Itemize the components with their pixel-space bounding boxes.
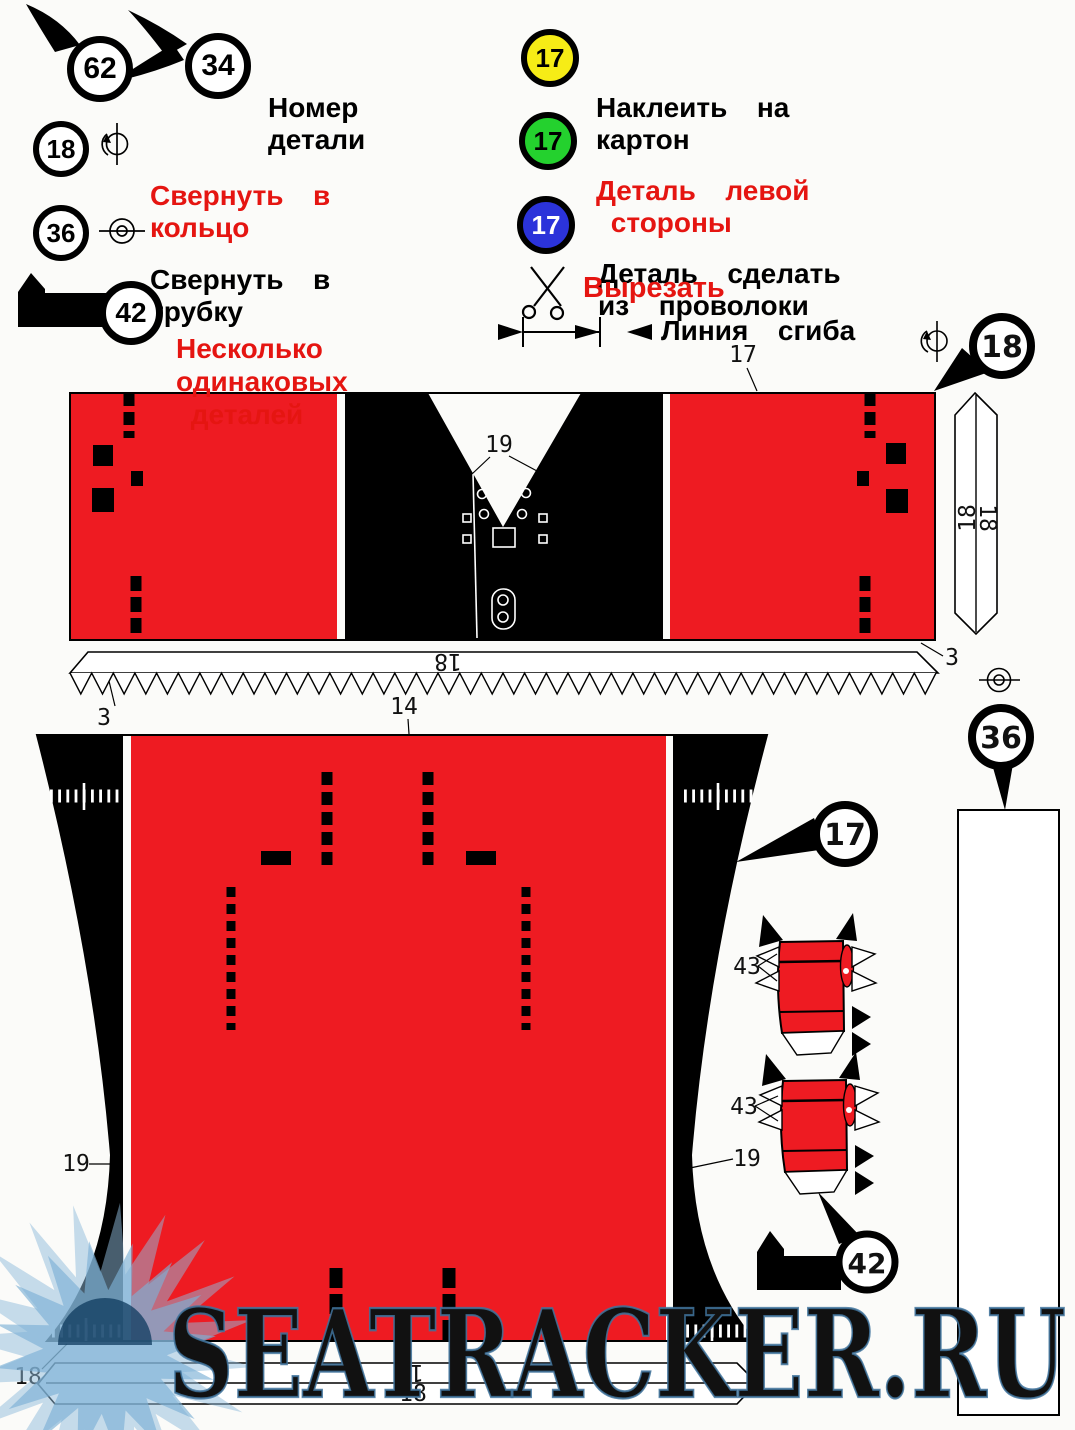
callout-flame-34a (128, 10, 187, 56)
legend-badge-18: 18 (33, 121, 89, 177)
label-19-top: 19 (485, 432, 513, 458)
part14-red-center (131, 735, 666, 1341)
scissors-icon (523, 267, 564, 319)
papercraft-sheet: 19 17 3 18 18 18 (0, 0, 1075, 1430)
legend-cut-out-label: Вырезать (583, 272, 725, 304)
legend-badge-17-green: 17 (519, 112, 577, 170)
legend-multiple-text: Несколькоодинаковых деталей (176, 266, 348, 497)
label-3-right: 3 (945, 645, 959, 671)
legend-badge-17-yellow: 17 (521, 29, 579, 87)
part-36-strip: 36 (958, 669, 1059, 1416)
tube-icon (979, 669, 1020, 692)
label-3-left: 3 (97, 705, 111, 731)
badge-42-callout: 42 (757, 1192, 895, 1290)
part-14-hull: 14 19 19 (37, 694, 767, 1341)
part14-black-left (37, 735, 123, 1341)
label-43-upper: 43 (733, 954, 761, 980)
strip18v-label-b: 18 (974, 504, 1000, 532)
legend-badge-36: 36 (33, 205, 89, 261)
callout-flame-62 (26, 4, 80, 52)
bottom-strip-17-18: 17 18 18 (14, 1344, 757, 1407)
part-43-upper: 43 (733, 913, 876, 1056)
legend-badge-42: 42 (99, 281, 163, 345)
bottom-strip18-label: 18 (399, 1381, 427, 1407)
part-18-vertical-strip: 18 18 (955, 393, 1000, 634)
ring-icon-legend (102, 123, 127, 165)
part-43-lower: 43 (730, 1052, 879, 1195)
badge-42-number: 42 (848, 1247, 887, 1280)
label-18-bottom-left: 18 (14, 1364, 42, 1390)
legend-badge-17-blue: 17 (517, 196, 575, 254)
legend-fold-line-label: Линия сгиба (661, 315, 855, 347)
legend-badge-62: 62 (67, 36, 133, 102)
label-19-right: 19 (733, 1146, 761, 1172)
legend-badge-34: 34 (185, 33, 251, 99)
part17-black-center (345, 393, 663, 640)
tube-icon-legend (99, 219, 145, 243)
label-14: 14 (390, 694, 418, 720)
badge-36-number: 36 (980, 721, 1022, 756)
label-43-lower: 43 (730, 1094, 758, 1120)
part14-black-right (673, 735, 767, 1341)
part36-rect (958, 810, 1059, 1415)
part17-red-right (670, 393, 935, 640)
badge-17-callout: 17 (736, 805, 874, 863)
badge-17-number: 17 (824, 818, 866, 853)
label-19-left: 19 (62, 1151, 90, 1177)
glue-strip-teeth (70, 673, 936, 694)
strip18h-label: 18 (434, 648, 462, 674)
part-18-glue-strip: 18 3 (70, 648, 938, 731)
